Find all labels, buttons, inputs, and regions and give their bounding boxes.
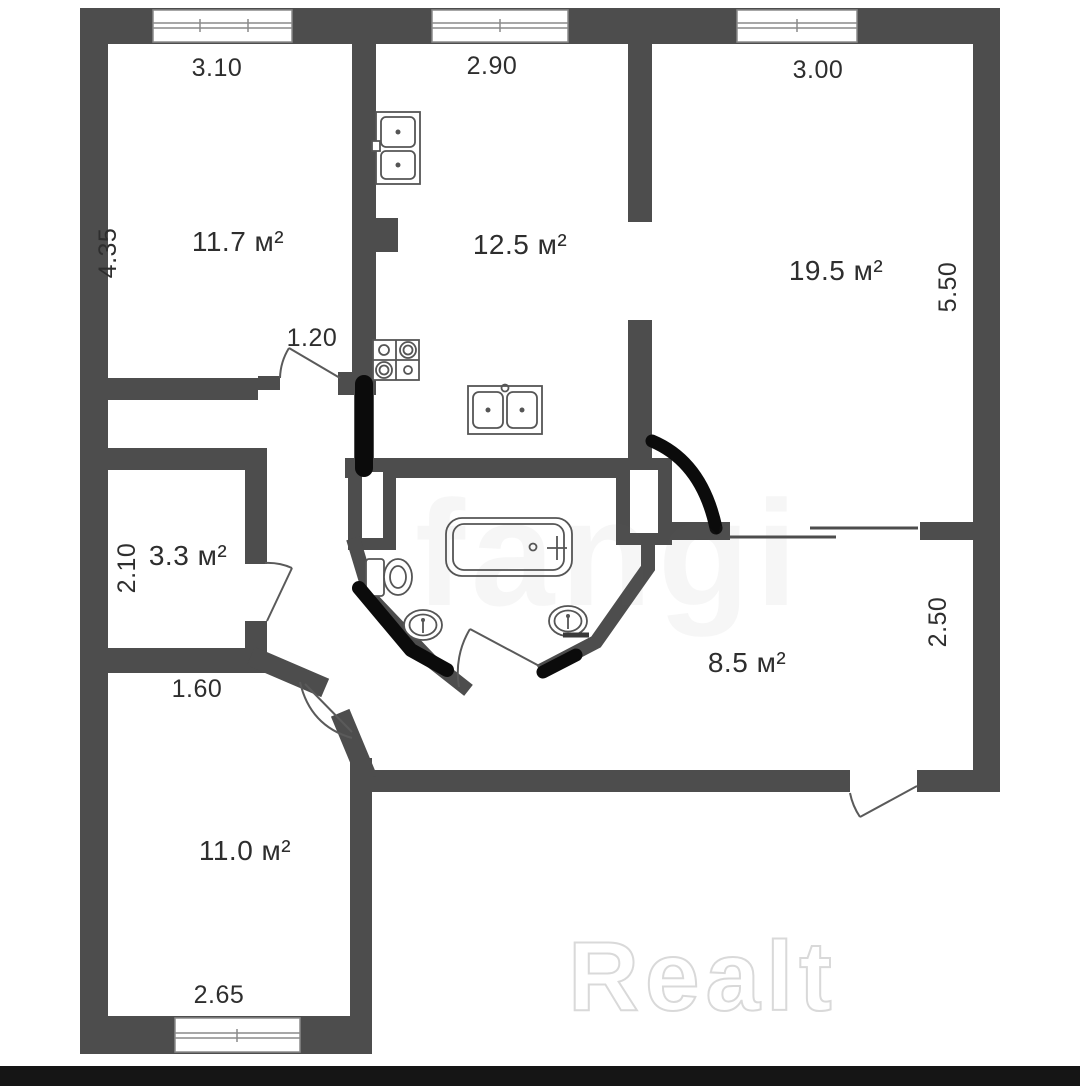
area-kitchen: 12.5 м² [473, 229, 567, 260]
area-room-tr: 19.5 м² [789, 255, 883, 286]
wall-bottom-right [917, 770, 1000, 792]
toilet [366, 559, 412, 596]
wall-right [973, 8, 1000, 792]
wall-tl-bottom [100, 378, 258, 400]
dim-door-tl: 1.20 [287, 324, 338, 352]
area-room-bl: 11.0 м² [199, 835, 291, 866]
door-storage [265, 563, 292, 621]
wall-hall-top-right [920, 522, 973, 540]
dim-hall-passage: 1.60 [172, 675, 223, 703]
area-hall: 8.5 м² [708, 647, 786, 678]
wall-storage-right-upper [245, 448, 267, 564]
dim-room-tl-height: 4.35 [94, 228, 122, 279]
shaft-left-void [362, 472, 383, 538]
wall-kitchen-tr-upper [628, 44, 652, 222]
wall-tl-kitchen [352, 44, 376, 374]
marker-bath-right [543, 655, 576, 672]
wall-storage-right-lower [245, 621, 267, 650]
wall-corridor-bottom [352, 770, 850, 792]
wall-storage-bottom [100, 648, 267, 673]
wall-left [80, 8, 108, 1054]
area-storage: 3.3 м² [149, 540, 227, 571]
window-room-tr [737, 10, 857, 42]
window-room-tl [153, 10, 292, 42]
brand-watermark: Realt [568, 921, 838, 1031]
kitchen-sink-bottom [468, 385, 542, 435]
dim-hall-height: 2.50 [924, 597, 952, 648]
wall-bl-right [350, 758, 372, 1054]
floor-plan-svg: fangi 3.10 2.90 3.00 4.35 5.50 1.20 2.10… [0, 0, 1080, 1086]
window-kitchen [432, 10, 568, 42]
ghost-watermark: fangi [415, 469, 803, 637]
floor-plan-image: fangi 3.10 2.90 3.00 4.35 5.50 1.20 2.10… [0, 0, 1080, 1086]
dim-storage-height: 2.10 [113, 543, 141, 594]
stove [373, 340, 419, 380]
wall-kitchen-pier [376, 218, 398, 252]
wall-diagonal-bl-door-left [260, 660, 316, 684]
area-room-tl: 11.7 м² [192, 226, 284, 257]
window-room-bl [175, 1018, 300, 1052]
door-hall-bottom [850, 786, 917, 817]
dim-room-tl-width: 3.10 [192, 54, 243, 82]
bottom-letterbox-bar [0, 1066, 1080, 1086]
dim-room-tr-width: 3.00 [793, 56, 844, 84]
dim-kitchen-width: 2.90 [467, 52, 518, 80]
door-stub-left [258, 376, 280, 390]
door-bathroom [458, 629, 543, 687]
kitchen-sink-top [372, 112, 420, 184]
door-room-tl [280, 348, 340, 378]
dim-room-bl-width: 2.65 [194, 981, 245, 1009]
dim-room-tr-height: 5.50 [934, 262, 962, 313]
wall-storage-top [100, 448, 267, 470]
